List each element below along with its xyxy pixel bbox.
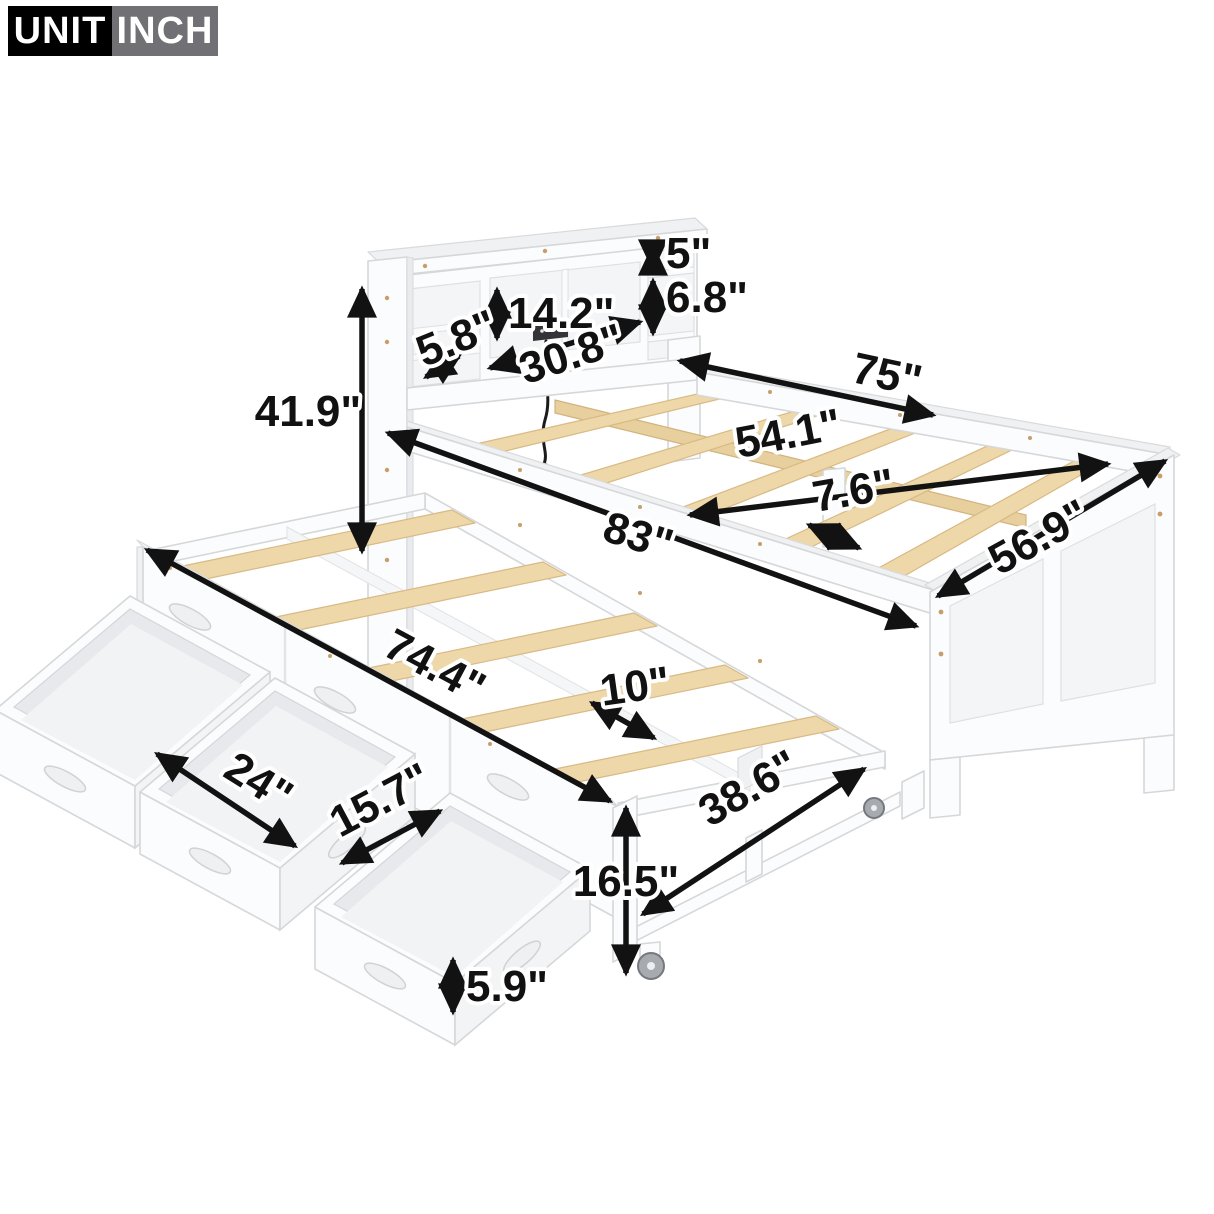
dim-label-headboard-height: 41.9": [255, 387, 362, 436]
unit-badge-label: UNIT: [14, 10, 107, 52]
dim-label-trundle-slat-gap: 10": [597, 658, 673, 716]
trundle-slat: [271, 562, 566, 631]
dim-label-shelf-mid: 6.8": [666, 273, 748, 322]
dim-label-shelf-top: 5": [666, 229, 711, 278]
caster-hub: [647, 962, 655, 970]
dim-label-drawer-height: 5.9": [466, 962, 548, 1011]
footboard-left-leg: [930, 757, 960, 818]
unit-badge-value: INCH: [117, 10, 214, 52]
dim-label-trundle-height: 16.5": [573, 857, 680, 906]
dimension-diagram-page: UNIT INCH: [0, 0, 1214, 1214]
unit-badge: UNIT INCH: [8, 6, 218, 56]
bed-dimension-diagram: UNIT INCH: [0, 0, 1214, 1214]
trundle-rail-foot: [902, 771, 924, 819]
footboard-right-leg: [1144, 735, 1174, 793]
caster-hub: [871, 805, 877, 811]
